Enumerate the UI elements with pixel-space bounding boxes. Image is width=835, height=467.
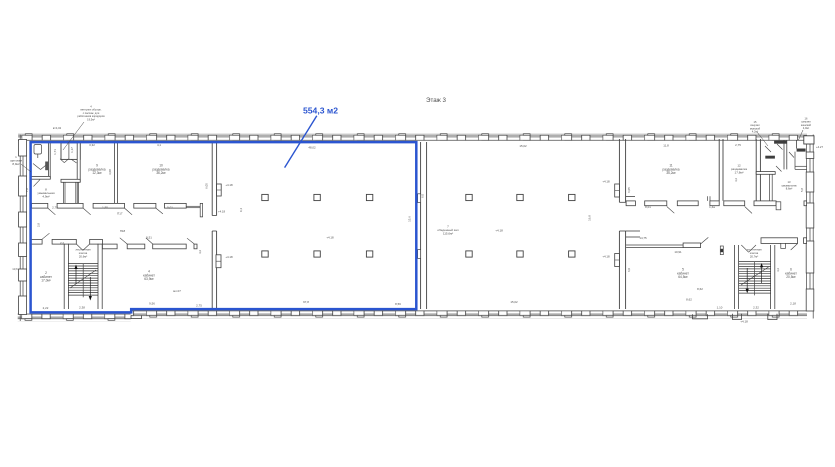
svg-text:1,4а: 1,4а: [709, 205, 715, 209]
svg-text:8,01: 8,01: [645, 205, 651, 209]
svg-text:4,2: 4,2: [776, 268, 780, 272]
svg-text:3,08: 3,08: [108, 169, 112, 175]
svg-text:12,3м²: 12,3м²: [92, 171, 101, 175]
svg-text:в=4,02: в=4,02: [53, 126, 62, 130]
svg-text:64,5м²: 64,5м²: [678, 275, 687, 279]
svg-text:8,6м²: 8,6м²: [786, 187, 793, 191]
svg-text:13,6: 13,6: [12, 267, 18, 271]
svg-text:5,8: 5,8: [800, 188, 804, 192]
svg-text:+4.18: +4.18: [225, 255, 233, 259]
svg-text:6,05: 6,05: [205, 183, 209, 189]
svg-text:+4.18: +4.18: [602, 255, 610, 259]
svg-text:2,75: 2,75: [52, 206, 58, 210]
svg-text:8,56: 8,56: [395, 302, 401, 306]
svg-text:П18: П18: [120, 229, 126, 233]
svg-text:63,9м²: 63,9м²: [144, 277, 153, 281]
svg-text:+4.18: +4.18: [326, 236, 334, 240]
svg-text:4,2: 4,2: [198, 250, 202, 254]
svg-text:8,9м²: 8,9м²: [12, 162, 19, 166]
svg-text:9,01: 9,01: [167, 206, 173, 210]
svg-text:6,0: 6,0: [627, 268, 631, 272]
svg-text:П17: П17: [117, 212, 123, 216]
svg-text:1,71: 1,71: [53, 149, 57, 155]
svg-text:мл.07: мл.07: [173, 289, 181, 293]
svg-text:3,32: 3,32: [89, 143, 95, 147]
svg-text:10,91: 10,91: [674, 250, 682, 254]
svg-text:2,75: 2,75: [735, 143, 741, 147]
svg-text:2,18: 2,18: [790, 302, 796, 306]
svg-text:9,51: 9,51: [146, 236, 152, 240]
svg-text:Этаж 3: Этаж 3: [426, 97, 447, 104]
svg-text:115,6м²: 115,6м²: [443, 232, 453, 236]
svg-text:1,55: 1,55: [102, 206, 108, 210]
svg-text:15,6: 15,6: [408, 216, 412, 222]
svg-text:+4.18: +4.18: [740, 320, 748, 324]
svg-text:9,56: 9,56: [149, 302, 155, 306]
svg-text:+4.18: +4.18: [495, 229, 503, 233]
svg-text:6,05: 6,05: [627, 187, 631, 193]
svg-text:+4.18: +4.18: [225, 183, 233, 187]
svg-text:9,4: 9,4: [239, 208, 243, 212]
svg-text:20,6м²: 20,6м²: [79, 254, 87, 258]
svg-text:8,62: 8,62: [697, 287, 703, 291]
svg-text:6,0: 6,0: [421, 194, 425, 198]
svg-text:4,2: 4,2: [734, 178, 738, 182]
svg-text:19,5м²: 19,5м²: [87, 117, 95, 121]
svg-text:97,8: 97,8: [303, 300, 309, 304]
svg-text:20,5м²: 20,5м²: [786, 275, 795, 279]
svg-text:2,22: 2,22: [43, 306, 49, 310]
svg-text:4,1: 4,1: [157, 143, 161, 147]
svg-text:4,2м²: 4,2м²: [752, 130, 758, 134]
svg-text:4,9м²: 4,9м²: [42, 195, 49, 199]
svg-text:35,2м²: 35,2м²: [666, 171, 675, 175]
svg-text:2,75: 2,75: [196, 304, 202, 308]
svg-text:2,2: 2,2: [60, 241, 64, 245]
svg-text:17,0м²: 17,0м²: [41, 279, 50, 283]
svg-text:2,38: 2,38: [79, 305, 85, 309]
svg-text:+4.27: +4.27: [816, 145, 824, 149]
svg-text:554,3 м2: 554,3 м2: [303, 106, 338, 116]
svg-text:15,02: 15,02: [510, 300, 518, 304]
svg-text:7,8: 7,8: [25, 188, 29, 192]
svg-text:1,10: 1,10: [717, 306, 723, 310]
svg-text:15,02: 15,02: [519, 144, 527, 148]
svg-text:4,0м²: 4,0м²: [803, 126, 809, 130]
svg-text:16,8: 16,8: [588, 215, 592, 221]
svg-text:14,75: 14,75: [639, 236, 647, 240]
svg-text:+4.18: +4.18: [218, 210, 226, 214]
svg-text:1,17: 1,17: [70, 147, 74, 153]
svg-text:2,32: 2,32: [753, 306, 759, 310]
svg-text:8,62: 8,62: [686, 298, 692, 302]
svg-text:11,8: 11,8: [663, 144, 669, 148]
svg-text:36,2м²: 36,2м²: [156, 171, 165, 175]
svg-text:20,7м²: 20,7м²: [750, 254, 758, 258]
svg-text:2,8: 2,8: [37, 223, 41, 227]
svg-text:17,8м²: 17,8м²: [735, 171, 744, 175]
svg-text:+4.18: +4.18: [602, 180, 610, 184]
svg-text:48,02: 48,02: [308, 146, 316, 150]
